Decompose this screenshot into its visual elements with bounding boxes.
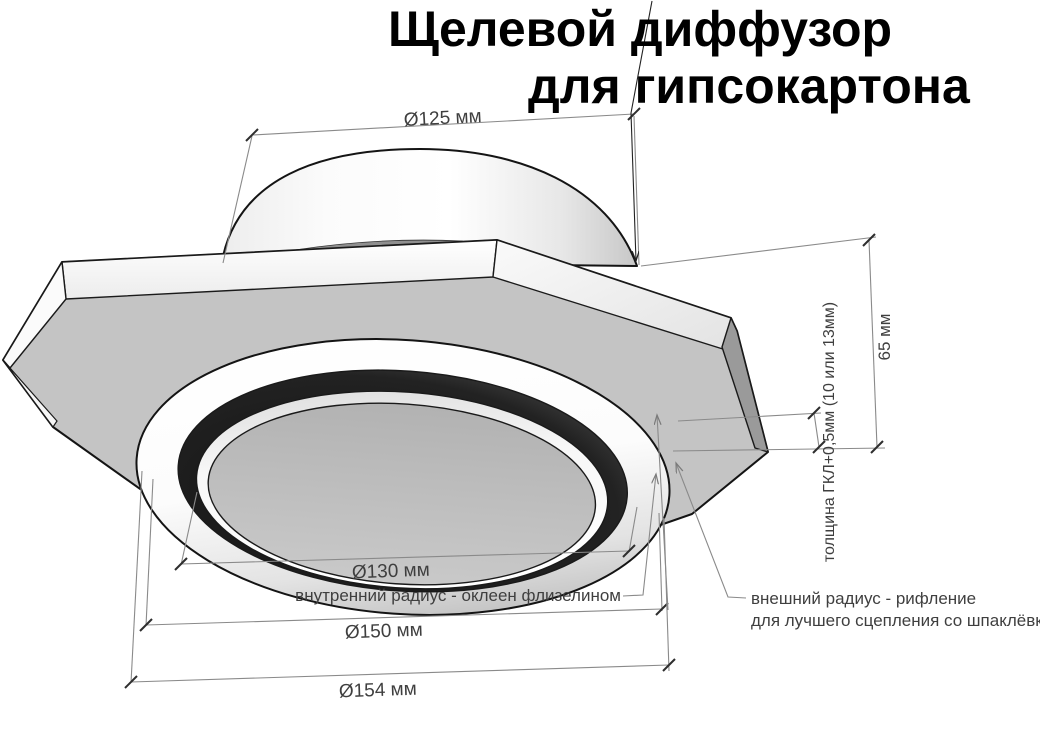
total-height-label: 65 мм xyxy=(875,313,894,360)
inner-diameter-label: Ø130 мм xyxy=(352,560,431,584)
diagram-title-line2: для гипсокартона xyxy=(528,61,970,111)
outer-radius-note-line2: для лучшего сцепления со шпаклёвкой xyxy=(751,611,1040,630)
gkl-thickness-label: толщина ГКЛ+0,5мм (10 или 13мм) xyxy=(821,302,838,562)
diffuser-3d-object xyxy=(3,149,768,632)
outer-radius-note-line1: внешний радиус - рифление xyxy=(751,589,976,608)
diagram-title-line1: Щелевой диффузор xyxy=(388,4,892,54)
inner-radius-note: внутренний радиус - оклеен флизелином xyxy=(295,586,621,605)
outer-diameter-label: Ø150 мм xyxy=(345,620,424,644)
flange-diameter-label: Ø154 мм xyxy=(339,679,418,703)
diagram-page: Ø125 мм 65 мм толщина ГКЛ+0,5мм (10 или … xyxy=(0,0,1040,729)
duct-diameter-label: Ø125 мм xyxy=(403,106,482,131)
